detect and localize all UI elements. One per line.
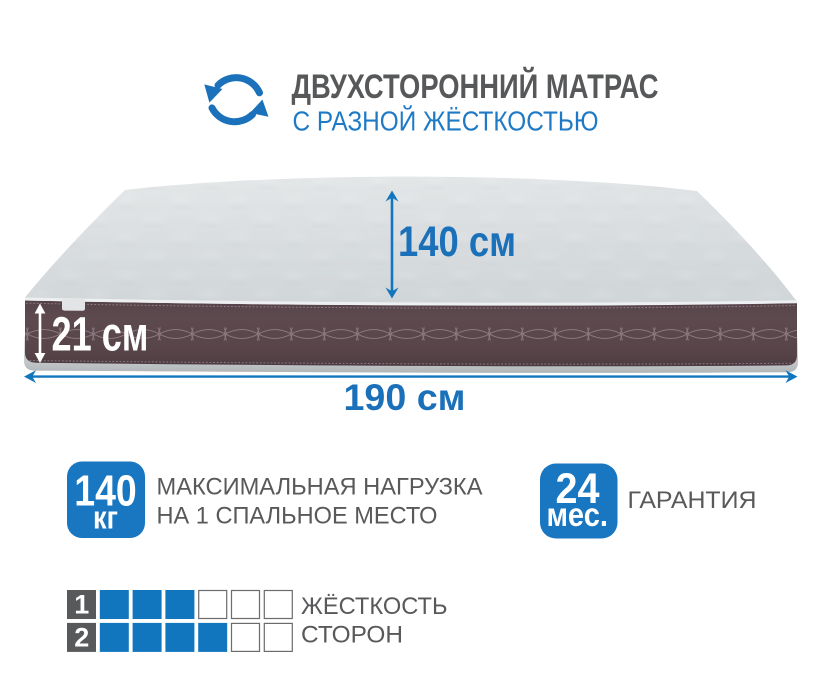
svg-text:ДВУХСТОРОННИЙ МАТРАС: ДВУХСТОРОННИЙ МАТРАС <box>292 66 659 106</box>
svg-text:ЖЁСТКОСТЬ: ЖЁСТКОСТЬ <box>301 593 448 620</box>
svg-text:ГАРАНТИЯ: ГАРАНТИЯ <box>628 487 757 514</box>
svg-text:мес.: мес. <box>546 496 608 533</box>
svg-text:2: 2 <box>74 623 89 653</box>
svg-text:НА 1 СПАЛЬНОЕ МЕСТО: НА 1 СПАЛЬНОЕ МЕСТО <box>157 502 438 529</box>
svg-text:21 см: 21 см <box>52 308 149 362</box>
svg-text:СТОРОН: СТОРОН <box>301 622 403 649</box>
svg-text:С РАЗНОЙ ЖЁСТКОСТЬЮ: С РАЗНОЙ ЖЁСТКОСТЬЮ <box>293 105 599 136</box>
svg-text:МАКСИМАЛЬНАЯ НАГРУЗКА: МАКСИМАЛЬНАЯ НАГРУЗКА <box>157 474 484 501</box>
svg-text:1: 1 <box>74 589 89 619</box>
svg-text:кг: кг <box>93 500 118 536</box>
svg-text:190 см: 190 см <box>344 376 466 418</box>
svg-text:140 см: 140 см <box>398 218 516 266</box>
